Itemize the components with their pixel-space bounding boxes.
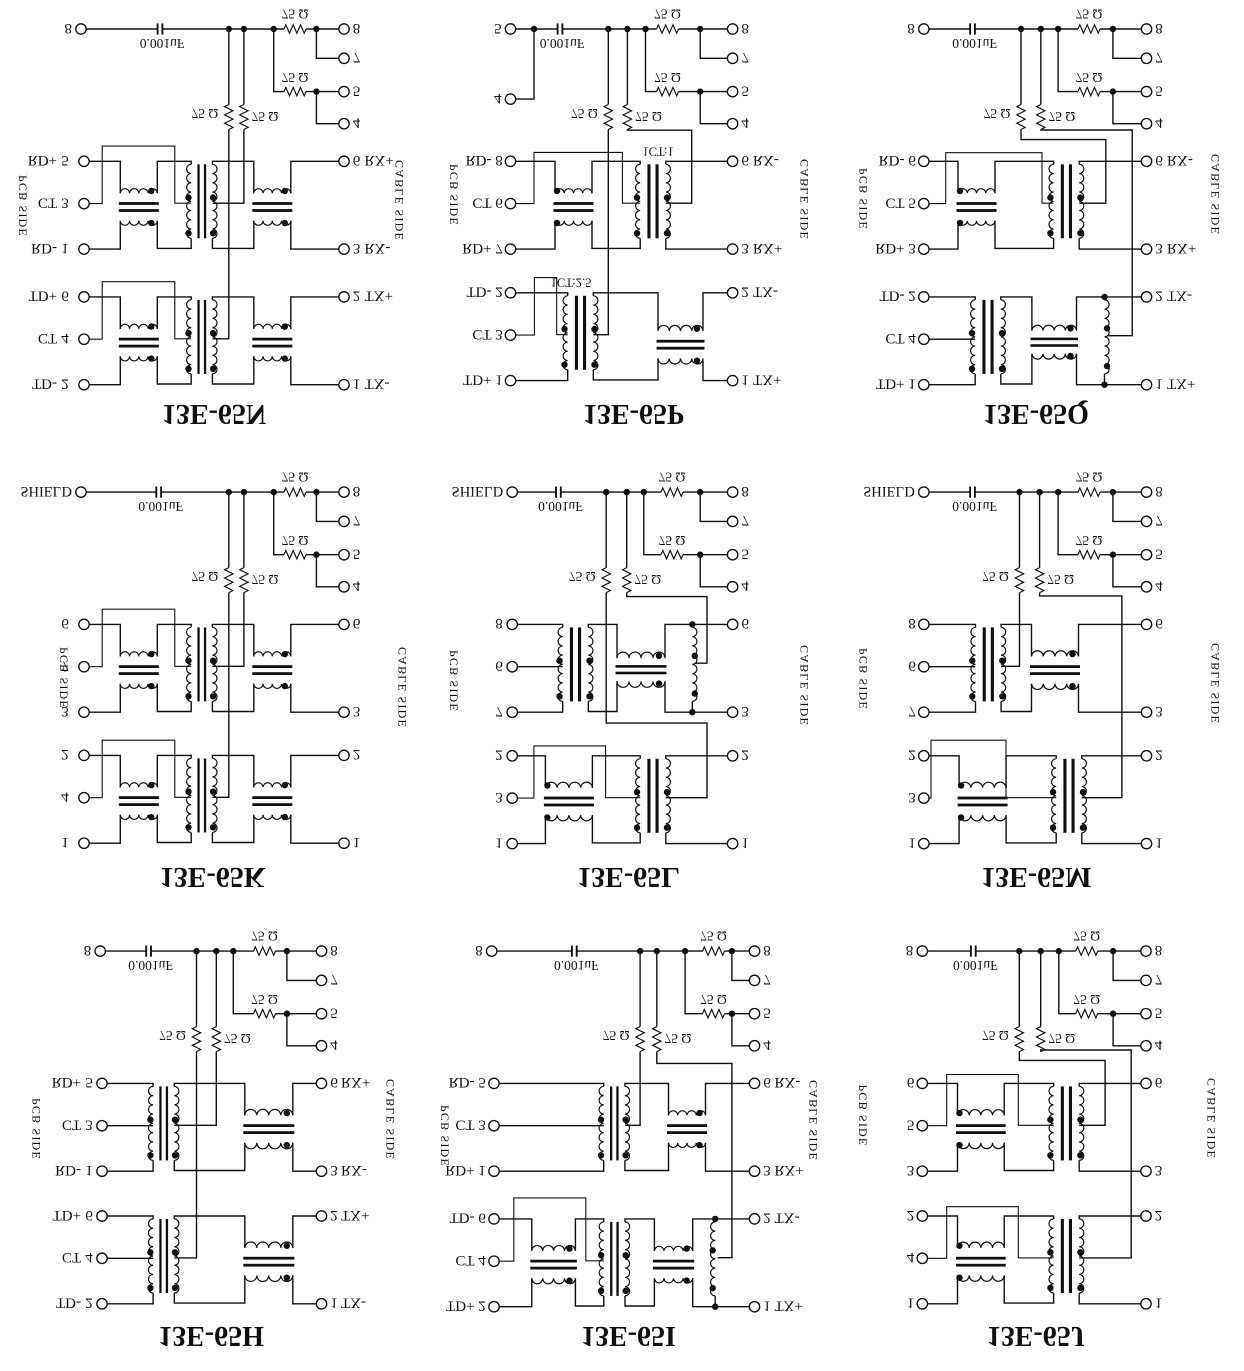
svg-text:75 Ω: 75 Ω [1073,929,1100,944]
svg-text:1: 1 [495,834,503,850]
svg-text:8: 8 [353,20,361,36]
svg-text:3: 3 [495,326,503,342]
svg-text:SHIELD: SHIELD [863,483,915,499]
svg-text:0.001uF: 0.001uF [540,36,585,51]
svg-text:RX-: RX- [365,240,391,256]
svg-text:1: 1 [353,376,361,392]
svg-text:PCB SIDE: PCB SIDE [855,1085,869,1147]
svg-text:7: 7 [741,49,749,65]
svg-text:1: 1 [330,1295,338,1311]
svg-text:8: 8 [65,20,73,36]
svg-text:SHIELD: SHIELD [20,483,72,499]
svg-text:8: 8 [741,20,749,36]
svg-text:3: 3 [330,1162,338,1178]
svg-text:6: 6 [61,288,69,304]
svg-text:5: 5 [494,20,502,36]
svg-text:7: 7 [763,971,771,987]
svg-text:8: 8 [763,942,771,958]
svg-text:TX+: TX+ [775,1298,803,1314]
svg-text:13E-65L: 13E-65L [577,861,680,892]
svg-text:75 Ω: 75 Ω [251,929,278,944]
svg-text:CT: CT [472,194,491,210]
svg-text:1: 1 [478,1162,486,1178]
svg-text:3: 3 [763,1162,771,1178]
svg-text:75 Ω: 75 Ω [282,533,309,548]
svg-text:RX+: RX+ [775,1162,804,1178]
svg-text:6: 6 [908,658,916,674]
svg-text:TD-: TD- [450,1210,475,1226]
svg-text:4: 4 [1155,1037,1163,1053]
svg-text:RD-: RD- [31,240,57,256]
svg-text:4: 4 [330,1037,338,1053]
svg-text:5: 5 [85,1074,93,1090]
svg-text:75 Ω: 75 Ω [634,572,661,587]
svg-text:4: 4 [85,1249,93,1265]
svg-text:8: 8 [353,483,361,499]
svg-text:RD+: RD+ [28,152,57,168]
svg-text:PCB SIDE: PCB SIDE [447,164,461,226]
svg-text:2: 2 [908,747,916,763]
svg-text:3: 3 [907,1162,915,1178]
svg-text:CABLE SIDE: CABLE SIDE [797,159,811,240]
svg-text:7: 7 [1155,49,1163,65]
svg-text:4: 4 [1155,578,1163,594]
svg-text:CT: CT [885,330,904,346]
svg-text:3: 3 [1155,1162,1163,1178]
svg-text:TD-: TD- [880,288,905,304]
svg-text:5: 5 [1155,82,1163,98]
svg-text:CABLE SIDE: CABLE SIDE [383,1079,397,1160]
svg-text:5: 5 [61,152,69,168]
svg-text:4: 4 [61,789,69,805]
svg-text:3: 3 [908,789,916,805]
svg-text:CT: CT [62,1249,81,1265]
svg-text:1: 1 [353,834,361,850]
svg-text:6: 6 [495,194,503,210]
svg-text:TD+: TD+ [29,288,57,304]
svg-text:2: 2 [741,747,749,763]
svg-text:3: 3 [1155,703,1163,719]
svg-text:75 Ω: 75 Ω [1047,572,1074,587]
svg-text:RX+: RX+ [365,152,394,168]
svg-text:5: 5 [741,546,749,562]
svg-text:75 Ω: 75 Ω [159,1028,186,1043]
svg-text:13E-65P: 13E-65P [583,398,684,429]
svg-text:75 Ω: 75 Ω [191,569,218,584]
svg-text:0.001uF: 0.001uF [952,36,997,51]
svg-text:TX-: TX- [341,1295,366,1311]
svg-text:1: 1 [1155,1295,1163,1311]
svg-text:75 Ω: 75 Ω [282,470,309,485]
svg-text:1: 1 [495,371,503,387]
svg-text:3: 3 [1155,240,1163,256]
svg-text:4: 4 [353,115,361,131]
svg-text:3: 3 [908,240,916,256]
svg-text:6: 6 [353,615,361,631]
svg-text:6: 6 [763,1074,771,1090]
svg-text:4: 4 [61,330,69,346]
svg-text:75 Ω: 75 Ω [282,70,309,85]
svg-text:6: 6 [61,615,69,631]
svg-text:1: 1 [907,1295,915,1311]
svg-text:7: 7 [330,971,338,987]
svg-text:75 Ω: 75 Ω [191,106,218,121]
svg-text:75 Ω: 75 Ω [984,106,1011,121]
svg-text:5: 5 [478,1074,486,1090]
svg-text:0.001uF: 0.001uF [952,499,997,514]
svg-text:CABLE SIDE: CABLE SIDE [1208,154,1222,235]
svg-text:0.001uF: 0.001uF [554,958,599,973]
svg-text:PCB SIDE: PCB SIDE [437,1105,451,1167]
svg-text:8: 8 [1155,942,1163,958]
svg-text:75 Ω: 75 Ω [700,929,727,944]
svg-text:75 Ω: 75 Ω [1048,1031,1075,1046]
svg-text:TD-: TD- [467,284,492,300]
svg-text:1CT:1: 1CT:1 [642,144,673,158]
svg-text:5: 5 [353,82,361,98]
svg-text:RX+: RX+ [341,1074,370,1090]
svg-text:TX-: TX- [365,376,390,392]
svg-text:1CT:2.5: 1CT:2.5 [551,275,592,289]
svg-text:TD+: TD+ [446,1298,474,1314]
svg-text:5: 5 [763,1005,771,1021]
svg-text:RX-: RX- [753,152,779,168]
svg-text:75 Ω: 75 Ω [659,533,686,548]
svg-text:2: 2 [353,288,361,304]
svg-text:5: 5 [741,82,749,98]
svg-text:2: 2 [495,747,503,763]
svg-text:8: 8 [84,942,92,958]
svg-text:6: 6 [330,1074,338,1090]
svg-text:TX+: TX+ [1167,376,1195,392]
svg-text:13E-65I: 13E-65I [581,1320,676,1351]
svg-text:CT: CT [62,1117,81,1133]
svg-text:CT: CT [885,194,904,210]
svg-text:5: 5 [1155,546,1163,562]
svg-text:1: 1 [61,240,69,256]
svg-text:7: 7 [1155,512,1163,528]
svg-text:75 Ω: 75 Ω [1048,109,1075,124]
svg-text:6: 6 [85,1207,93,1223]
svg-text:6: 6 [908,152,916,168]
svg-text:8: 8 [741,483,749,499]
svg-text:1: 1 [1155,834,1163,850]
svg-text:75 Ω: 75 Ω [664,1031,691,1046]
svg-text:CABLE SIDE: CABLE SIDE [1208,643,1222,724]
svg-text:3: 3 [741,703,749,719]
svg-text:75 Ω: 75 Ω [282,7,309,22]
svg-text:4: 4 [494,90,502,106]
svg-text:RD+: RD+ [52,1074,81,1090]
svg-text:6: 6 [907,1074,915,1090]
svg-text:CT: CT [38,330,57,346]
svg-text:75 Ω: 75 Ω [251,992,278,1007]
svg-text:8: 8 [906,942,914,958]
svg-text:75 Ω: 75 Ω [654,7,681,22]
svg-text:1: 1 [1155,376,1163,392]
svg-text:3: 3 [353,240,361,256]
svg-text:1: 1 [61,834,69,850]
svg-text:75 Ω: 75 Ω [603,1028,630,1043]
svg-text:6: 6 [741,615,749,631]
svg-text:3: 3 [741,240,749,256]
svg-text:TD+: TD+ [463,371,491,387]
svg-text:2: 2 [85,1295,93,1311]
svg-text:2: 2 [1155,747,1163,763]
svg-text:5: 5 [330,1005,338,1021]
svg-text:6: 6 [1155,615,1163,631]
svg-text:TD-: TD- [32,376,57,392]
svg-text:75 Ω: 75 Ω [224,1031,251,1046]
svg-text:8: 8 [475,942,483,958]
svg-text:3: 3 [85,1117,93,1133]
svg-text:RX+: RX+ [753,240,782,256]
svg-text:3: 3 [353,703,361,719]
svg-text:2: 2 [478,1298,486,1314]
svg-text:8: 8 [1155,20,1163,36]
svg-text:7: 7 [908,703,916,719]
svg-text:6: 6 [1155,1074,1163,1090]
svg-text:TX+: TX+ [341,1207,369,1223]
svg-text:TD+: TD+ [53,1207,81,1223]
svg-text:5: 5 [908,194,916,210]
svg-text:75 Ω: 75 Ω [982,569,1009,584]
svg-text:1: 1 [763,1298,771,1314]
svg-text:CT: CT [455,1252,474,1268]
svg-text:75 Ω: 75 Ω [1073,992,1100,1007]
svg-text:PCB SIDE: PCB SIDE [57,647,71,709]
svg-text:1: 1 [908,376,916,392]
svg-text:0.001uF: 0.001uF [138,499,183,514]
svg-text:0.001uF: 0.001uF [140,36,185,51]
svg-text:2: 2 [353,746,361,762]
svg-text:PCB SIDE: PCB SIDE [856,168,870,230]
svg-text:PCB SIDE: PCB SIDE [856,648,870,710]
svg-text:13E-65H: 13E-65H [158,1320,264,1351]
svg-text:8: 8 [1155,483,1163,499]
svg-text:CT: CT [472,326,491,342]
svg-text:6: 6 [353,152,361,168]
svg-text:0.001uF: 0.001uF [128,958,173,973]
svg-text:7: 7 [1155,971,1163,987]
svg-text:CT: CT [455,1117,474,1133]
svg-text:CABLE SIDE: CABLE SIDE [395,647,409,728]
svg-text:2: 2 [61,376,69,392]
svg-text:6: 6 [495,658,503,674]
svg-text:75 Ω: 75 Ω [571,106,598,121]
svg-text:RD-: RD- [466,152,492,168]
svg-text:0.001uF: 0.001uF [953,958,998,973]
svg-text:TX-: TX- [775,1210,800,1226]
svg-text:75 Ω: 75 Ω [654,70,681,85]
svg-text:75 Ω: 75 Ω [1076,470,1103,485]
svg-text:5: 5 [1155,1005,1163,1021]
svg-text:13E-65J: 13E-65J [987,1320,1085,1351]
svg-text:13E-65M: 13E-65M [981,861,1091,892]
svg-text:CABLE SIDE: CABLE SIDE [1204,1078,1218,1159]
svg-text:RX+: RX+ [1167,240,1196,256]
svg-text:4: 4 [741,115,749,131]
svg-text:RX-: RX- [341,1162,367,1178]
svg-text:6: 6 [741,152,749,168]
svg-text:8: 8 [495,152,503,168]
svg-text:13E-65N: 13E-65N [162,398,266,429]
svg-text:4: 4 [907,1249,915,1265]
svg-text:TX+: TX+ [753,371,781,387]
svg-text:75 Ω: 75 Ω [659,470,686,485]
svg-text:2: 2 [1155,288,1163,304]
svg-text:1: 1 [85,1162,93,1178]
svg-text:4: 4 [1155,115,1163,131]
svg-text:2: 2 [741,284,749,300]
svg-text:7: 7 [495,240,503,256]
svg-text:PCB SIDE: PCB SIDE [16,175,30,237]
svg-text:6: 6 [1155,152,1163,168]
svg-text:TX-: TX- [753,284,778,300]
svg-text:2: 2 [495,284,503,300]
svg-text:CABLE SIDE: CABLE SIDE [392,160,406,241]
svg-text:CT: CT [38,194,57,210]
svg-text:75 Ω: 75 Ω [1076,7,1103,22]
svg-text:6: 6 [478,1210,486,1226]
svg-text:TD-: TD- [56,1295,81,1311]
svg-text:75 Ω: 75 Ω [635,109,662,124]
svg-text:TD+: TD+ [876,376,904,392]
svg-text:7: 7 [741,512,749,528]
svg-text:75 Ω: 75 Ω [251,109,278,124]
svg-text:PCB SIDE: PCB SIDE [447,650,461,712]
svg-text:2: 2 [330,1207,338,1223]
svg-text:SHIELD: SHIELD [452,483,504,499]
svg-text:4: 4 [478,1252,486,1268]
svg-text:PCB SIDE: PCB SIDE [29,1098,43,1160]
svg-text:7: 7 [353,512,361,528]
svg-text:1: 1 [741,371,749,387]
svg-text:TX-: TX- [1167,288,1192,304]
svg-text:RX-: RX- [1167,152,1193,168]
svg-text:1: 1 [741,834,749,850]
svg-text:2: 2 [763,1210,771,1226]
svg-text:75 Ω: 75 Ω [700,992,727,1007]
svg-text:8: 8 [907,20,915,36]
svg-text:TX+: TX+ [365,288,393,304]
svg-text:RX-: RX- [775,1074,801,1090]
svg-text:75 Ω: 75 Ω [1076,70,1103,85]
svg-text:8: 8 [330,942,338,958]
svg-text:13E-65Q: 13E-65Q [983,398,1089,429]
svg-text:3: 3 [478,1117,486,1133]
svg-text:75 Ω: 75 Ω [1076,533,1103,548]
svg-text:0.001uF: 0.001uF [538,499,583,514]
svg-text:RD-: RD- [55,1162,81,1178]
svg-text:5: 5 [353,546,361,562]
svg-text:13E-65K: 13E-65K [160,861,266,892]
svg-text:CABLE SIDE: CABLE SIDE [806,1080,820,1161]
svg-text:RD-: RD- [879,152,905,168]
svg-text:4: 4 [353,578,361,594]
svg-text:4: 4 [908,330,916,346]
svg-text:4: 4 [763,1037,771,1053]
svg-text:RD-: RD- [449,1074,475,1090]
svg-text:5: 5 [907,1117,915,1133]
svg-text:2: 2 [61,746,69,762]
svg-text:75 Ω: 75 Ω [251,572,278,587]
svg-text:3: 3 [495,789,503,805]
svg-text:3: 3 [61,194,69,210]
svg-text:1: 1 [908,834,916,850]
svg-text:8: 8 [908,615,916,631]
svg-text:2: 2 [1155,1207,1163,1223]
svg-text:RD+: RD+ [875,240,904,256]
svg-text:7: 7 [353,49,361,65]
svg-text:75 Ω: 75 Ω [569,569,596,584]
svg-text:7: 7 [495,703,503,719]
svg-text:RD+: RD+ [462,240,491,256]
svg-text:2: 2 [907,1207,915,1223]
svg-text:75 Ω: 75 Ω [982,1028,1009,1043]
svg-text:2: 2 [908,288,916,304]
svg-text:CABLE SIDE: CABLE SIDE [797,645,811,726]
svg-text:8: 8 [495,615,503,631]
svg-text:4: 4 [741,578,749,594]
